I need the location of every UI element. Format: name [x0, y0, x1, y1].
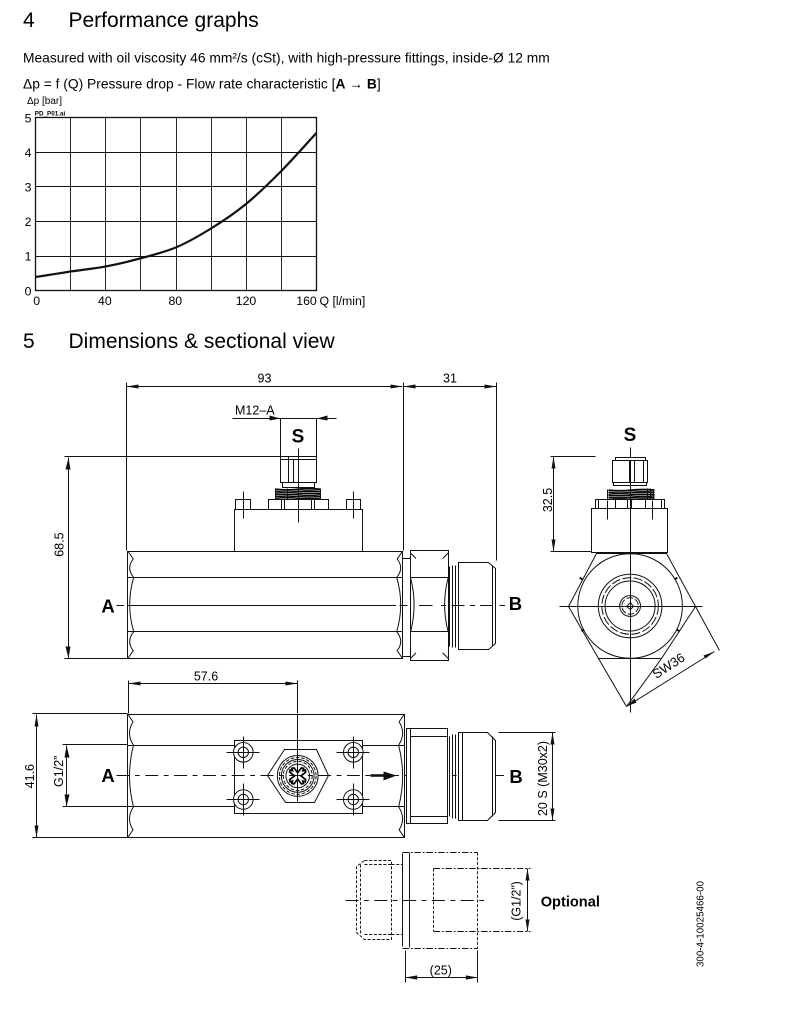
svg-text:2: 2 — [25, 215, 32, 229]
svg-text:PD_P01.ai: PD_P01.ai — [35, 111, 66, 118]
svg-text:120: 120 — [236, 294, 257, 308]
svg-text:Δp [bar]: Δp [bar] — [27, 96, 62, 107]
svg-text:Dimensions & sectional view: Dimensions & sectional view — [69, 330, 336, 353]
svg-text:31: 31 — [443, 372, 457, 386]
svg-text:57.6: 57.6 — [194, 670, 218, 684]
svg-text:(G1/2”): (G1/2”) — [509, 881, 523, 921]
svg-text:300-4-10025466-00: 300-4-10025466-00 — [696, 880, 707, 967]
svg-text:S: S — [292, 427, 305, 448]
svg-text:32.5: 32.5 — [541, 488, 555, 512]
svg-text:68.5: 68.5 — [53, 532, 67, 556]
svg-text:41.6: 41.6 — [23, 764, 37, 788]
svg-text:Performance graphs: Performance graphs — [69, 9, 259, 32]
svg-text:B: B — [509, 766, 522, 787]
svg-text:G1/2”: G1/2” — [52, 756, 66, 787]
svg-text:20 S (M30x2): 20 S (M30x2) — [536, 741, 550, 816]
svg-text:Measured with oil viscosity 46: Measured with oil viscosity 46 mm²/s (cS… — [23, 50, 550, 65]
svg-text:Q [l/min]: Q [l/min] — [320, 294, 366, 308]
svg-text:S: S — [624, 425, 637, 446]
svg-text:0: 0 — [25, 284, 32, 298]
svg-text:M12–A: M12–A — [235, 403, 275, 417]
svg-text:5: 5 — [23, 330, 35, 353]
svg-text:Δp = f (Q) Pressure drop - Flo: Δp = f (Q) Pressure drop - Flow rate cha… — [23, 76, 381, 91]
svg-text:160: 160 — [296, 294, 317, 308]
svg-text:3: 3 — [25, 181, 32, 195]
svg-text:5: 5 — [25, 111, 32, 125]
svg-text:93: 93 — [258, 372, 272, 386]
svg-text:0: 0 — [33, 294, 40, 308]
svg-text:80: 80 — [168, 294, 182, 308]
svg-text:Optional: Optional — [541, 895, 600, 911]
svg-text:A: A — [101, 595, 114, 616]
svg-text:40: 40 — [98, 294, 112, 308]
svg-text:4: 4 — [25, 146, 32, 160]
svg-text:4: 4 — [23, 9, 35, 32]
svg-text:B: B — [509, 593, 522, 614]
svg-text:(25): (25) — [430, 964, 452, 978]
svg-text:A: A — [101, 765, 114, 786]
svg-text:1: 1 — [25, 250, 32, 264]
